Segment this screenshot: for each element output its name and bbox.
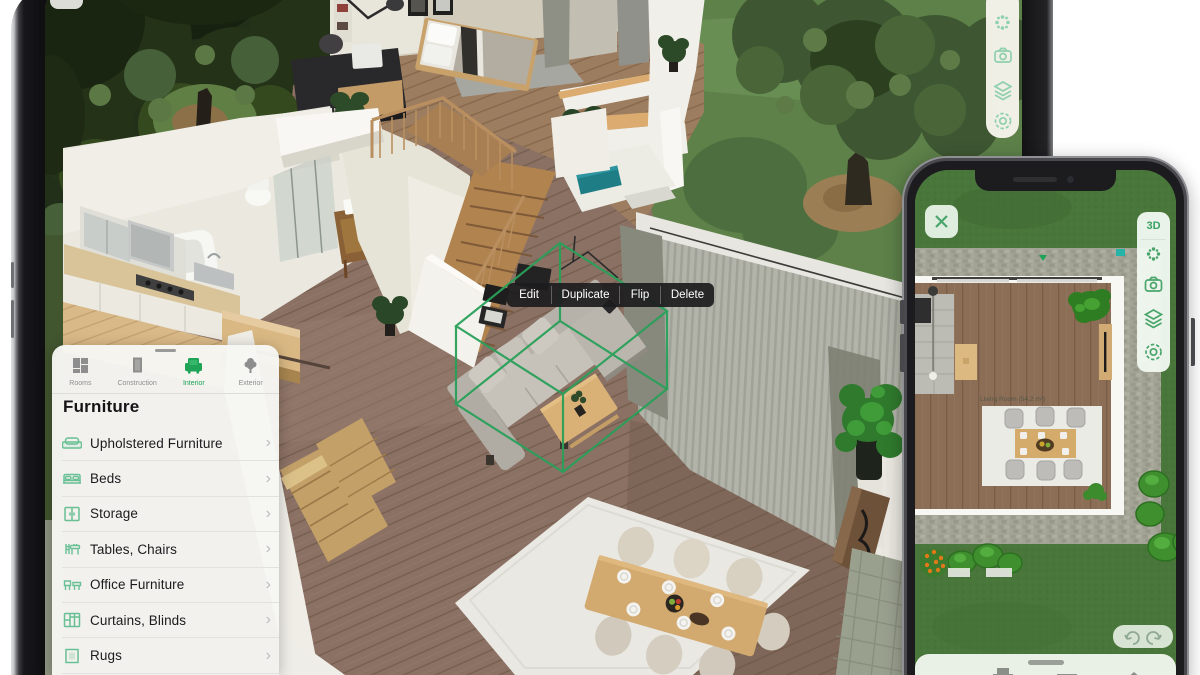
svg-text:Living Room (54,2 m²): Living Room (54,2 m²) bbox=[980, 396, 1045, 403]
